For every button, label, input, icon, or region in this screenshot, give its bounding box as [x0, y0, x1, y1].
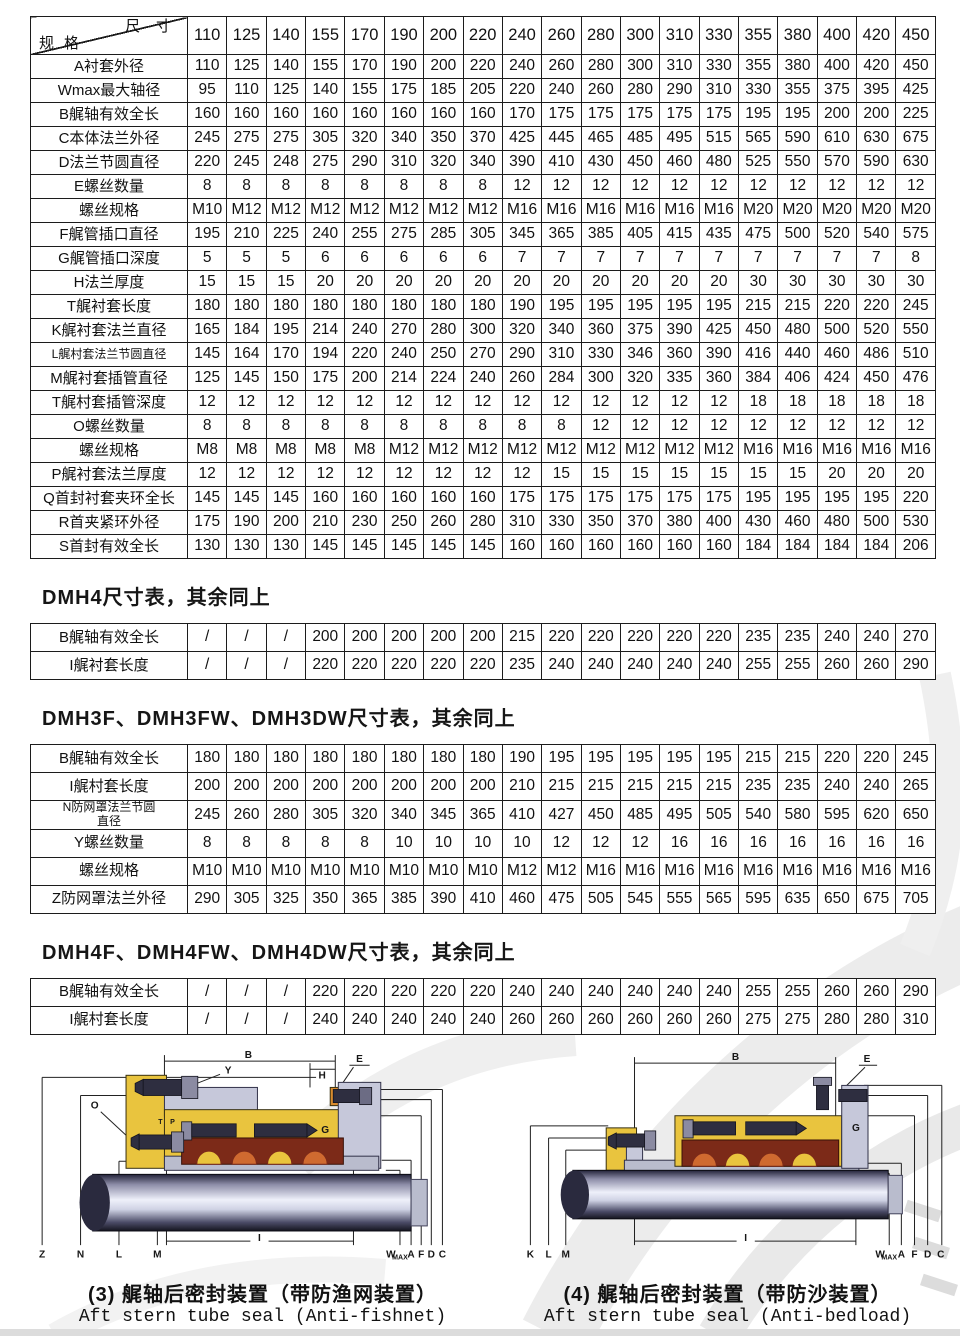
value-cell: 240 [502, 978, 541, 1006]
value-cell: 160 [502, 535, 541, 559]
value-cell: 290 [502, 343, 541, 367]
figures-row: B Y H E O T P G Z N L M I W MAX A F [30, 1047, 960, 1327]
value-cell: 180 [345, 745, 384, 773]
value-cell: 240 [660, 652, 699, 680]
row-label: I艉村套长度 [31, 1006, 188, 1034]
value-cell: 12 [699, 391, 738, 415]
value-cell: 12 [620, 829, 659, 857]
value-cell: 15 [620, 463, 659, 487]
row-label: C本体法兰外径 [31, 127, 188, 151]
value-cell: 190 [502, 745, 541, 773]
value-cell: 425 [502, 127, 541, 151]
value-cell: 260 [857, 652, 896, 680]
value-cell: 18 [857, 391, 896, 415]
value-cell: 12 [463, 463, 502, 487]
dim-label-f: F [911, 1249, 917, 1260]
value-cell: 435 [699, 223, 738, 247]
value-cell: M16 [581, 199, 620, 223]
value-cell: 195 [542, 295, 581, 319]
value-cell: 195 [542, 745, 581, 773]
value-cell: 485 [620, 127, 659, 151]
value-cell: 200 [463, 773, 502, 801]
table-row: F艉管插口直径195210225240255275285305345365385… [31, 223, 936, 247]
value-cell: 300 [581, 367, 620, 391]
value-cell: 220 [857, 295, 896, 319]
value-cell: M12 [306, 199, 345, 223]
value-cell: 12 [620, 175, 659, 199]
table-row: I艉衬套长度///2202202202202202352402402402402… [31, 652, 936, 680]
value-cell: M12 [424, 199, 463, 223]
value-cell: 240 [581, 978, 620, 1006]
value-cell: 595 [817, 801, 856, 830]
dim-label-wmax: MAX [881, 1254, 897, 1261]
value-cell: 480 [699, 151, 738, 175]
value-cell: 15 [227, 271, 266, 295]
size-header-cell: 170 [345, 17, 384, 55]
value-cell: 620 [857, 801, 896, 830]
value-cell: 175 [699, 103, 738, 127]
value-cell: 220 [384, 652, 423, 680]
value-cell: 160 [266, 103, 305, 127]
table-row: Wmax最大轴径95110125140155175185205220240260… [31, 79, 936, 103]
value-cell: 290 [345, 151, 384, 175]
value-cell: 20 [306, 271, 345, 295]
value-cell: 180 [227, 295, 266, 319]
value-cell: 260 [581, 1006, 620, 1034]
value-cell: 195 [739, 103, 778, 127]
value-cell: 12 [227, 463, 266, 487]
value-cell: 12 [502, 391, 541, 415]
value-cell: 195 [739, 487, 778, 511]
value-cell: M12 [345, 199, 384, 223]
value-cell: 240 [817, 624, 856, 652]
value-cell: 240 [620, 978, 659, 1006]
value-cell: 275 [739, 1006, 778, 1034]
value-cell: 160 [188, 103, 227, 127]
value-cell: 215 [581, 773, 620, 801]
value-cell: 195 [620, 295, 659, 319]
value-cell: 220 [463, 652, 502, 680]
value-cell: 190 [502, 295, 541, 319]
value-cell: 20 [542, 271, 581, 295]
value-cell: 184 [817, 535, 856, 559]
value-cell: 10 [502, 829, 541, 857]
value-cell: 340 [463, 151, 502, 175]
table-row: 螺丝规格M10M10M10M10M10M10M10M10M12M12M16M16… [31, 857, 936, 885]
value-cell: 240 [620, 652, 659, 680]
value-cell: 245 [227, 151, 266, 175]
dim-label-a: A [898, 1249, 906, 1260]
value-cell: 160 [660, 535, 699, 559]
value-cell: 8 [266, 415, 305, 439]
value-cell: 180 [345, 295, 384, 319]
value-cell: 565 [739, 127, 778, 151]
value-cell: 575 [896, 223, 936, 247]
row-label: I艉衬套长度 [31, 652, 188, 680]
value-cell: 12 [581, 829, 620, 857]
value-cell: 545 [620, 885, 659, 913]
value-cell: 260 [620, 1006, 659, 1034]
value-cell: 275 [778, 1006, 817, 1034]
value-cell: 485 [620, 801, 659, 830]
value-cell: 12 [739, 415, 778, 439]
value-cell: 285 [424, 223, 463, 247]
value-cell: 310 [542, 343, 581, 367]
value-cell: 20 [345, 271, 384, 295]
value-cell: 245 [896, 745, 936, 773]
value-cell: 220 [660, 624, 699, 652]
value-cell: 145 [306, 535, 345, 559]
value-cell: 424 [817, 367, 856, 391]
value-cell: 12 [778, 175, 817, 199]
value-cell: 5 [227, 247, 266, 271]
section-title-dmh4: DMH4尺寸表，其余同上 [42, 581, 960, 610]
value-cell: 248 [266, 151, 305, 175]
value-cell: 8 [188, 175, 227, 199]
size-header-row: 尺寸规格110125140155170190200220240260280300… [31, 17, 936, 55]
value-cell: 305 [306, 801, 345, 830]
main-dimensions-table: 尺寸规格110125140155170190200220240260280300… [30, 16, 936, 559]
value-cell: 200 [345, 624, 384, 652]
value-cell: 12 [581, 415, 620, 439]
value-cell: 12 [620, 391, 659, 415]
value-cell: M12 [463, 199, 502, 223]
value-cell: 170 [502, 103, 541, 127]
value-cell: 260 [817, 978, 856, 1006]
value-cell: 6 [424, 247, 463, 271]
value-cell: 330 [739, 79, 778, 103]
value-cell: 185 [424, 79, 463, 103]
value-cell: 145 [227, 367, 266, 391]
value-cell: 125 [188, 367, 227, 391]
value-cell: 580 [778, 801, 817, 830]
value-cell: 260 [542, 55, 581, 79]
value-cell: 460 [817, 343, 856, 367]
value-cell: 12 [778, 415, 817, 439]
value-cell: 20 [817, 463, 856, 487]
value-cell: 265 [896, 773, 936, 801]
value-cell: 12 [857, 415, 896, 439]
value-cell: 310 [896, 1006, 936, 1034]
table-row: C本体法兰外径245275275305320340350370425445465… [31, 127, 936, 151]
row-label: 螺丝规格 [31, 439, 188, 463]
size-header-cell: 380 [778, 17, 817, 55]
dim-label-p: P [170, 1118, 175, 1125]
value-cell: 555 [660, 885, 699, 913]
value-cell: 160 [620, 535, 659, 559]
value-cell: 215 [620, 773, 659, 801]
value-cell: 220 [620, 624, 659, 652]
section-title-dmh4f: DMH4F、DMH4FW、DMH4DW尺寸表，其余同上 [42, 936, 960, 965]
value-cell: 240 [463, 367, 502, 391]
value-cell: 370 [620, 511, 659, 535]
row-label: R首夹紧环外径 [31, 511, 188, 535]
value-cell: 425 [699, 319, 738, 343]
value-cell: 7 [502, 247, 541, 271]
value-cell: 280 [857, 1006, 896, 1034]
shaft [80, 1174, 428, 1231]
value-cell: 195 [699, 295, 738, 319]
value-cell: 7 [817, 247, 856, 271]
dim-label-e: E [864, 1054, 871, 1065]
value-cell: 250 [424, 343, 463, 367]
value-cell: 200 [227, 773, 266, 801]
value-cell: 20 [660, 271, 699, 295]
row-label: A衬套外径 [31, 55, 188, 79]
value-cell: 145 [227, 487, 266, 511]
value-cell: 12 [660, 415, 699, 439]
caption-anti-bedload: (4) 艉轴后密封装置（带防沙装置） Aft stern tube seal (… [495, 1278, 960, 1327]
value-cell: 245 [188, 127, 227, 151]
value-cell: M16 [896, 857, 936, 885]
value-cell: 175 [542, 103, 581, 127]
value-cell: 160 [699, 535, 738, 559]
value-cell: 20 [424, 271, 463, 295]
value-cell: 370 [463, 127, 502, 151]
caption-en: Aft stern tube seal (Anti-fishnet) [30, 1307, 495, 1327]
value-cell: M10 [188, 857, 227, 885]
value-cell: 235 [778, 773, 817, 801]
value-cell: M10 [266, 857, 305, 885]
corner-spec-label: 规格 [39, 36, 89, 52]
table-row: D法兰节圆直径220245248275290310320340390410430… [31, 151, 936, 175]
value-cell: 486 [857, 343, 896, 367]
value-cell: 195 [857, 487, 896, 511]
value-cell: 180 [384, 745, 423, 773]
value-cell: 505 [699, 801, 738, 830]
value-cell: 125 [227, 55, 266, 79]
size-header-cell: 450 [896, 17, 936, 55]
table-row: B艉轴有效全长///200200200200200215220220220220… [31, 624, 936, 652]
value-cell: 12 [699, 175, 738, 199]
size-header-cell: 330 [699, 17, 738, 55]
value-cell: 346 [620, 343, 659, 367]
value-cell: 215 [502, 624, 541, 652]
value-cell: 305 [306, 127, 345, 151]
value-cell: M16 [778, 857, 817, 885]
value-cell: 8 [266, 829, 305, 857]
value-cell: M12 [699, 439, 738, 463]
value-cell: 175 [581, 487, 620, 511]
value-cell: 500 [778, 223, 817, 247]
value-cell: 20 [502, 271, 541, 295]
value-cell: 6 [384, 247, 423, 271]
value-cell: 570 [817, 151, 856, 175]
value-cell: 125 [266, 79, 305, 103]
value-cell: 210 [306, 511, 345, 535]
value-cell: 330 [581, 343, 620, 367]
value-cell: 225 [896, 103, 936, 127]
value-cell: 590 [778, 127, 817, 151]
value-cell: 180 [424, 745, 463, 773]
value-cell: 465 [581, 127, 620, 151]
value-cell: 7 [857, 247, 896, 271]
value-cell: 160 [227, 103, 266, 127]
value-cell: 380 [660, 511, 699, 535]
value-cell: 8 [463, 175, 502, 199]
value-cell: 12 [699, 415, 738, 439]
value-cell: 427 [542, 801, 581, 830]
value-cell: M16 [699, 857, 738, 885]
value-cell: 175 [188, 511, 227, 535]
value-cell: 130 [227, 535, 266, 559]
value-cell: 220 [817, 745, 856, 773]
value-cell: 635 [778, 885, 817, 913]
value-cell: 160 [384, 487, 423, 511]
value-cell: 200 [306, 773, 345, 801]
value-cell: 20 [699, 271, 738, 295]
value-cell: M20 [778, 199, 817, 223]
value-cell: 355 [778, 79, 817, 103]
value-cell: 224 [424, 367, 463, 391]
value-cell: M12 [463, 439, 502, 463]
value-cell: 195 [660, 295, 699, 319]
value-cell: 475 [739, 223, 778, 247]
value-cell: 450 [620, 151, 659, 175]
table-row: I艉村套长度///2402402402402402602602602602602… [31, 1006, 936, 1034]
value-cell: 16 [699, 829, 738, 857]
table-row: P艉衬套法兰厚度12121212121212121215151515151515… [31, 463, 936, 487]
value-cell: 12 [502, 175, 541, 199]
value-cell: M10 [227, 857, 266, 885]
table-row: T艉衬套长度1801801801801801801801801901951951… [31, 295, 936, 319]
value-cell: 215 [778, 745, 817, 773]
table-corner-header: 尺寸规格 [31, 17, 188, 55]
value-cell: 385 [384, 885, 423, 913]
row-label: K艉衬套法兰直径 [31, 319, 188, 343]
value-cell: 10 [384, 829, 423, 857]
value-cell: 180 [266, 745, 305, 773]
value-cell: 195 [778, 487, 817, 511]
value-cell: 220 [345, 978, 384, 1006]
value-cell: 195 [266, 319, 305, 343]
value-cell: 300 [463, 319, 502, 343]
value-cell: 360 [660, 343, 699, 367]
value-cell: 12 [739, 175, 778, 199]
value-cell: 220 [502, 79, 541, 103]
value-cell: 160 [424, 103, 463, 127]
value-cell: 375 [620, 319, 659, 343]
value-cell: 12 [306, 463, 345, 487]
value-cell: 200 [424, 55, 463, 79]
value-cell: 180 [188, 295, 227, 319]
dim-label-l: L [116, 1249, 122, 1260]
value-cell: 8 [188, 415, 227, 439]
value-cell: 145 [463, 535, 502, 559]
value-cell: 180 [266, 295, 305, 319]
value-cell: 310 [384, 151, 423, 175]
value-cell: M16 [542, 199, 581, 223]
table-row: L艉村套法兰节圆直径145164170194220240250270290310… [31, 343, 936, 367]
value-cell: 175 [502, 487, 541, 511]
caption-zh: (4) 艉轴后密封装置（带防沙装置） [495, 1278, 960, 1307]
value-cell: M16 [896, 439, 936, 463]
value-cell: 220 [424, 652, 463, 680]
value-cell: 12 [306, 391, 345, 415]
value-cell: 160 [306, 487, 345, 511]
value-cell: 240 [345, 1006, 384, 1034]
value-cell: 310 [502, 511, 541, 535]
value-cell: 240 [857, 624, 896, 652]
value-cell: 16 [778, 829, 817, 857]
value-cell: 325 [266, 885, 305, 913]
table-row: B艉轴有效全长180180180180180180180180190195195… [31, 745, 936, 773]
value-cell: 495 [660, 801, 699, 830]
value-cell: M16 [739, 439, 778, 463]
value-cell: 240 [424, 1006, 463, 1034]
value-cell: 240 [542, 978, 581, 1006]
row-label: S首封有效全长 [31, 535, 188, 559]
value-cell: M16 [857, 439, 896, 463]
size-header-cell: 110 [188, 17, 227, 55]
value-cell: 12 [581, 175, 620, 199]
value-cell: 8 [424, 415, 463, 439]
value-cell: 450 [581, 801, 620, 830]
value-cell: 20 [896, 463, 936, 487]
value-cell: 705 [896, 885, 936, 913]
value-cell: 235 [739, 624, 778, 652]
value-cell: M8 [266, 439, 305, 463]
value-cell: 12 [542, 175, 581, 199]
dim-label-t: T [158, 1118, 163, 1125]
row-label: D法兰节圆直径 [31, 151, 188, 175]
value-cell: 375 [817, 79, 856, 103]
row-label: B艉轴有效全长 [31, 745, 188, 773]
value-cell: 320 [424, 151, 463, 175]
value-cell: 260 [542, 1006, 581, 1034]
value-cell: 220 [896, 487, 936, 511]
value-cell: 205 [463, 79, 502, 103]
value-cell: 270 [896, 624, 936, 652]
value-cell: 240 [463, 1006, 502, 1034]
value-cell: 390 [502, 151, 541, 175]
value-cell: 12 [266, 391, 305, 415]
value-cell: 460 [660, 151, 699, 175]
value-cell: 184 [857, 535, 896, 559]
value-cell: 12 [896, 175, 936, 199]
value-cell: 525 [739, 151, 778, 175]
size-header-cell: 190 [384, 17, 423, 55]
size-header-cell: 355 [739, 17, 778, 55]
value-cell: 505 [581, 885, 620, 913]
value-cell: 540 [857, 223, 896, 247]
value-cell: 12 [188, 391, 227, 415]
table-row: B艉轴有效全长160160160160160160160160170175175… [31, 103, 936, 127]
value-cell: 280 [620, 79, 659, 103]
value-cell: 365 [345, 885, 384, 913]
value-cell: 12 [542, 391, 581, 415]
value-cell: 240 [699, 978, 738, 1006]
value-cell: M12 [384, 199, 423, 223]
value-cell: M20 [817, 199, 856, 223]
table-row: T艉村套插管深度12121212121212121212121212121818… [31, 391, 936, 415]
value-cell: 195 [581, 745, 620, 773]
value-cell: 8 [384, 415, 423, 439]
value-cell: 15 [660, 463, 699, 487]
value-cell: 12 [857, 175, 896, 199]
value-cell: 260 [699, 1006, 738, 1034]
value-cell: 140 [306, 79, 345, 103]
value-cell: M10 [306, 857, 345, 885]
value-cell: M8 [306, 439, 345, 463]
value-cell: M16 [660, 857, 699, 885]
value-cell: 195 [778, 103, 817, 127]
value-cell: 380 [778, 55, 817, 79]
value-cell: 480 [778, 319, 817, 343]
value-cell: 6 [345, 247, 384, 271]
value-cell: / [188, 624, 227, 652]
value-cell: 12 [266, 463, 305, 487]
